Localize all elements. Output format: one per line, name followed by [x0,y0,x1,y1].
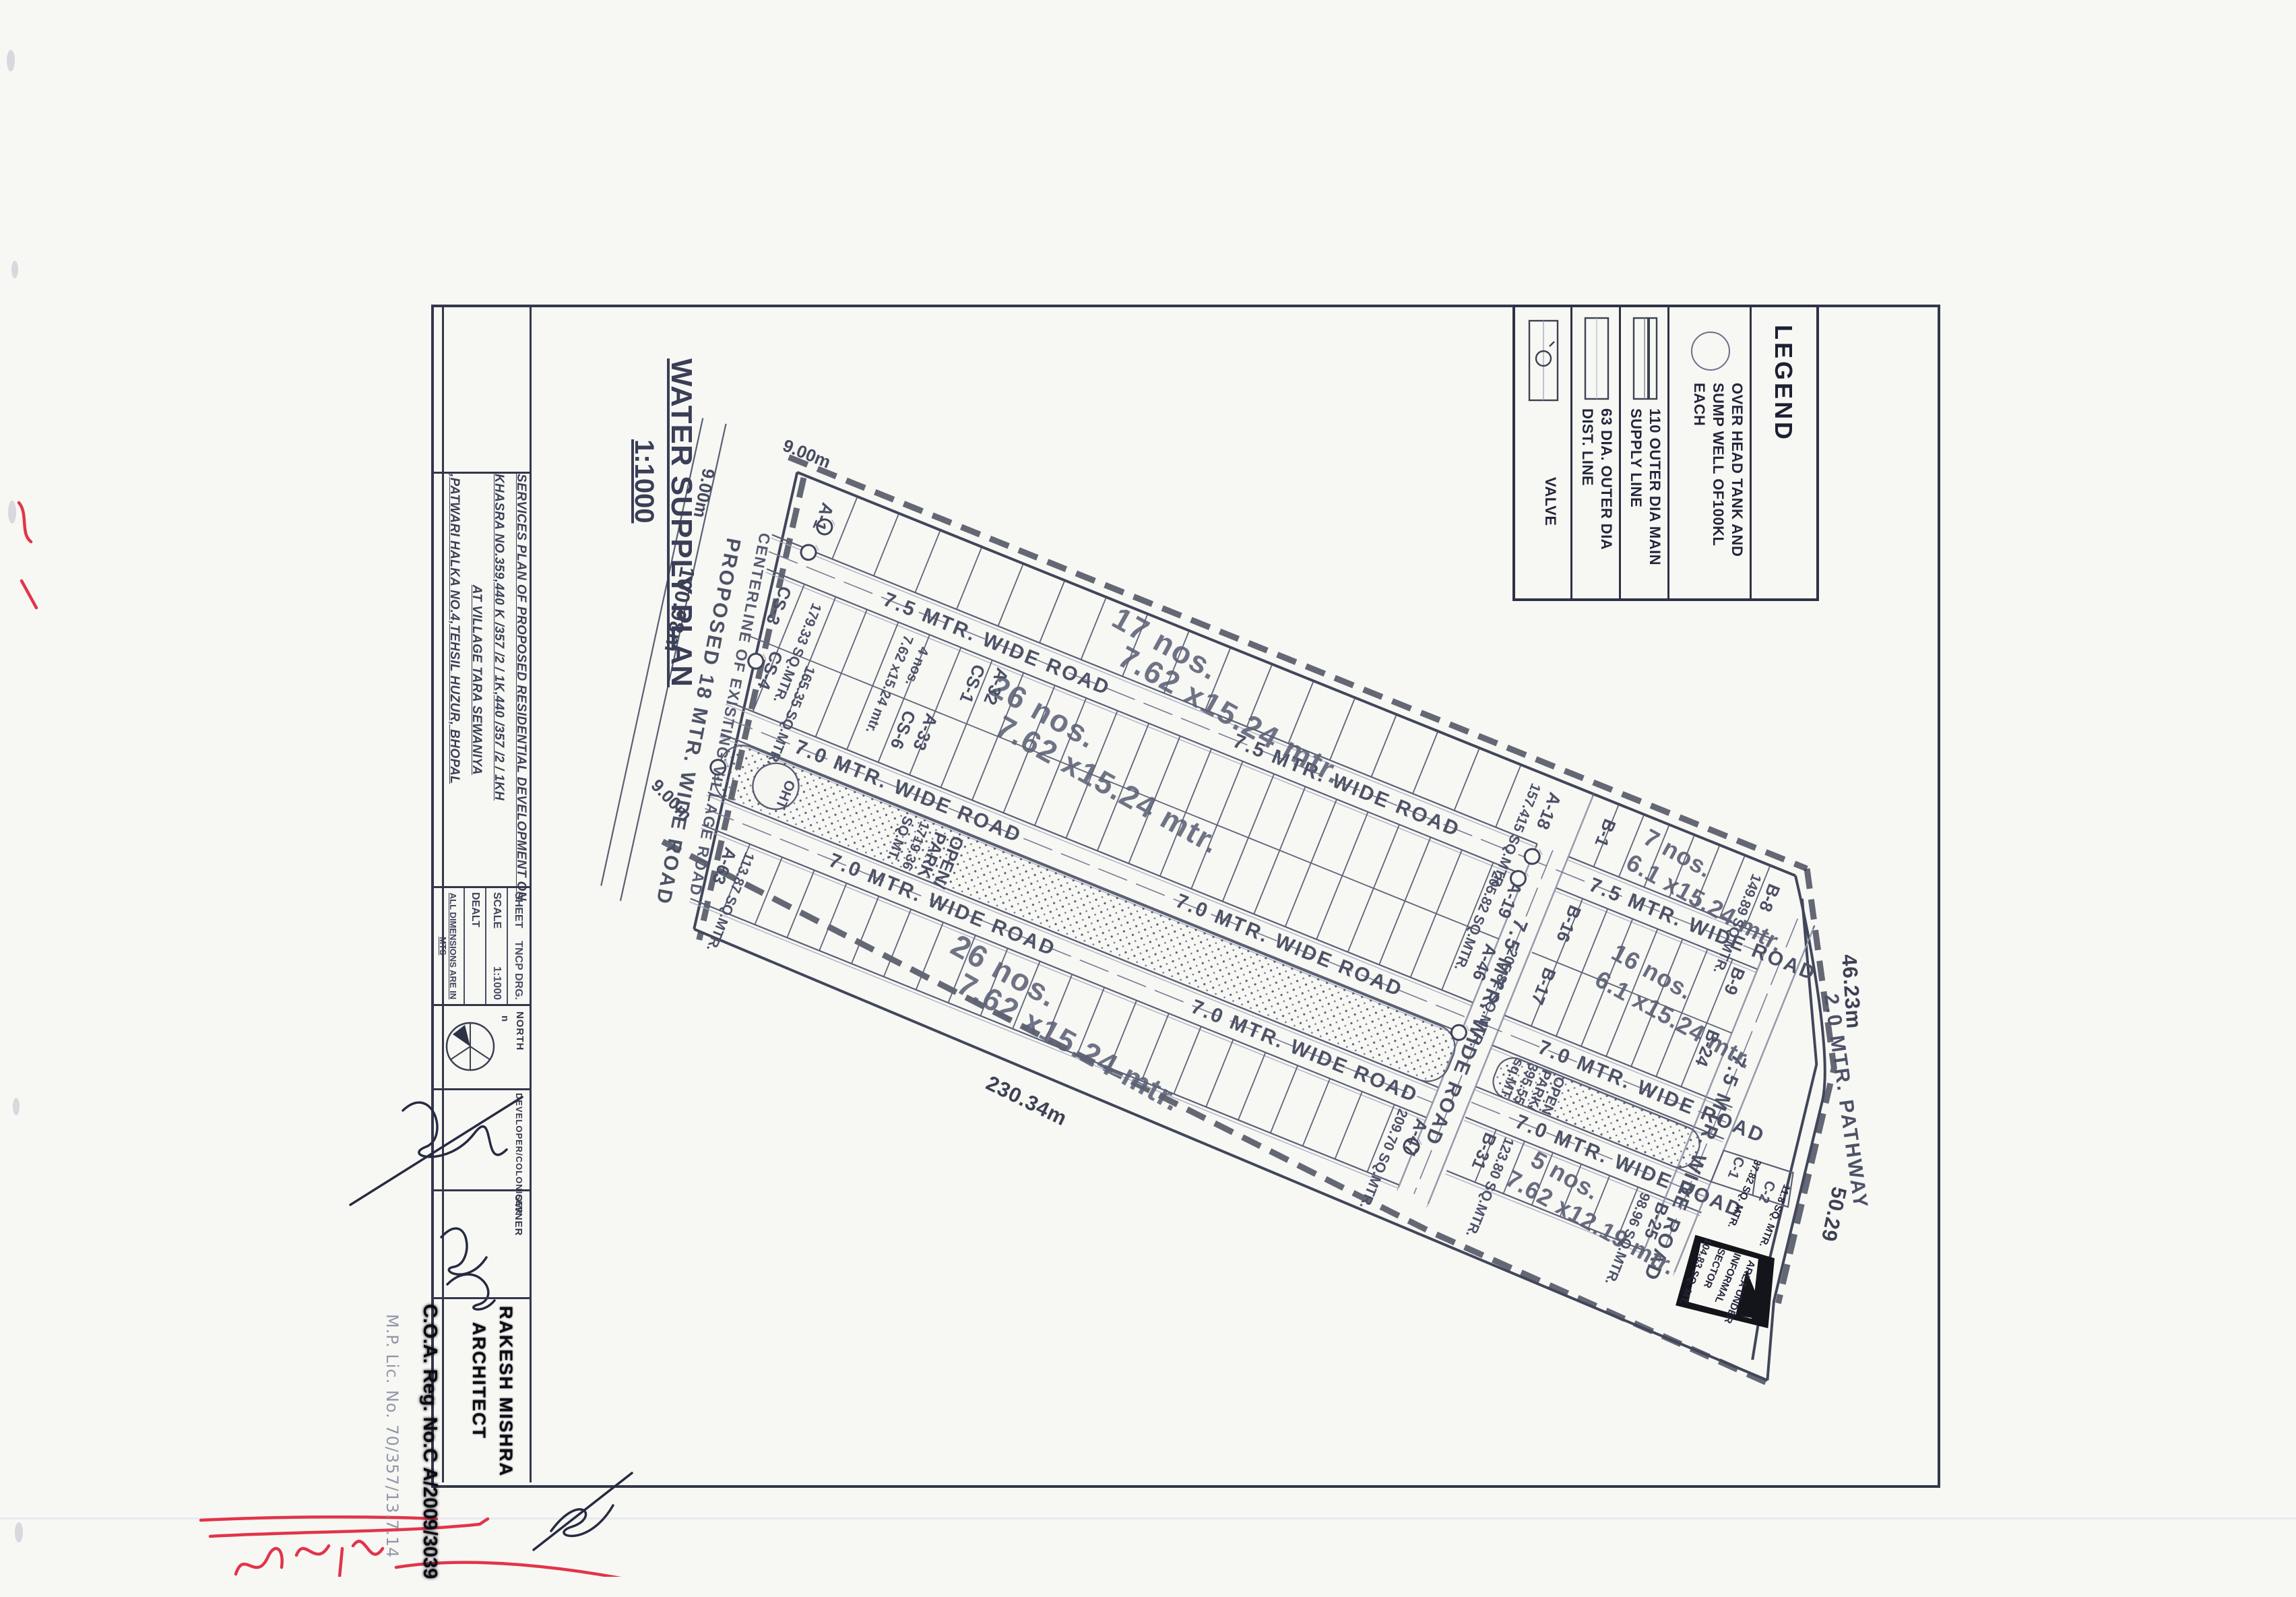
legend-item-oht: OVER HEAD TANK AND SUMP WELL OF100KL EAC… [1669,307,1752,598]
coa-registration-stamp: C.O.A. Reg. No.C A/2009/3039 [416,1304,441,1594]
red-edge-mark [19,503,36,608]
scan-smudge [7,50,15,71]
legend-item-valve: VALVE [1515,307,1572,598]
scale-label: SCALE [490,892,503,929]
legend-box: VALVE 63 DIA. OUTER DIA DIST. LINE 110 O… [1512,305,1819,601]
drawing-title-block: WATER SUPPLY PLAN 1:1000 [597,358,873,460]
scale-value: 1:1000 [490,966,503,1000]
licence-note: M.P. Lic. No. 70/357/13.7.14 [381,1314,402,1597]
main-supply-symbol-icon [1628,315,1662,403]
red-underline [210,1519,488,1536]
architect-name-stamp: RAKESH MISHRA [493,1306,516,1481]
dist-line-symbol-icon [1580,315,1614,403]
scan-smudge [11,261,18,278]
overhead-tank-symbol-icon [1687,327,1734,375]
owner-section: OWNER [434,1189,530,1297]
legend-dist-label: 63 DIA. OUTER DIA DIST. LINE [1578,408,1616,592]
scan-smudge [13,1098,20,1115]
drawing-title: WATER SUPPLY PLAN [664,358,698,635]
legend-oht-label: OVER HEAD TANK AND SUMP WELL OF100KL EAC… [1675,383,1746,585]
architect-title-stamp: ARCHITECT [466,1322,489,1457]
project-line-3: AT VILLAGE TARA SEWANIYA [469,474,484,886]
valve-symbol-icon [1523,318,1564,406]
legend-title: LEGEND [1768,325,1797,466]
drawing-info-table: SHEETTNCP DRG. SCALE1:1000 DEALT ALL DIM… [434,886,530,1004]
project-line-4: ,PATWARI HALKA NO.4,TEHSIL HUZUR, BHOPAL [447,474,461,886]
drawing-scale: 1:1000 [629,439,659,635]
legend-item-main-supply: 110 OUTER DIA MAIN SUPPLY LINE [1621,307,1669,598]
owner-label: OWNER [503,1194,524,1268]
sheet-label: SHEET [512,892,524,928]
north-section: n NORTH [434,1004,530,1088]
project-title-section: SERVICES PLAN OF PROPOSED RESIDENTIAL DE… [434,472,530,886]
project-line-2: KHASRA NO.359,440 K /357 /2 / 1K,440 /35… [491,474,506,886]
north-label: NORTH [505,1011,525,1086]
legend-title-strip: LEGEND [1752,307,1814,598]
developer-label: DEVELOPER/COLONISER [503,1093,524,1189]
sheet-value: TNCP DRG. [512,941,524,1000]
scanned-water-supply-plan: { "sheet": { "title": "WATER SUPPLY PLAN… [0,0,2296,1577]
red-handwritten-note [236,1541,680,1577]
dealt-label: DEALT [469,892,481,927]
dimensions-note: ALL DIMENSIONS ARE IN MTS [438,888,464,1004]
scan-smudge [8,501,16,524]
title-block-strip: SERVICES PLAN OF PROPOSED RESIDENTIAL DE… [434,305,532,1482]
legend-valve-label: VALVE [1530,477,1560,565]
legend-main-label: 110 OUTER DIA MAIN SUPPLY LINE [1626,408,1664,592]
north-arrow-icon [443,1020,497,1073]
architect-section: RAKESH MISHRA ARCHITECT [434,1297,530,1482]
developer-section: DEVELOPER/COLONISER [434,1088,530,1189]
legend-item-dist-line: 63 DIA. OUTER DIA DIST. LINE [1572,307,1621,598]
project-line-1: SERVICES PLAN OF PROPOSED RESIDENTIAL DE… [513,474,528,886]
fold-line [0,1517,2296,1520]
scan-smudge [15,1522,23,1542]
